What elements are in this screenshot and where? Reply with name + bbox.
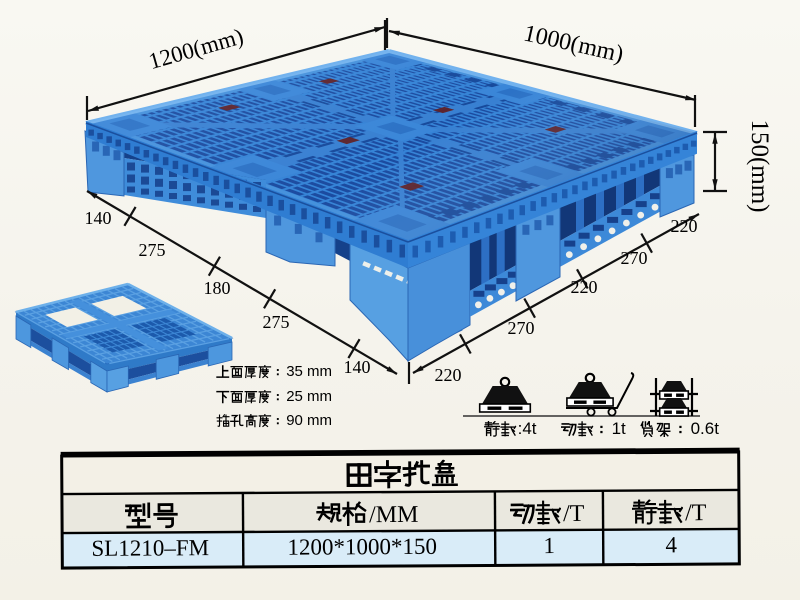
- svg-text:/T: /T: [685, 500, 707, 526]
- svg-text:1t: 1t: [612, 419, 626, 438]
- svg-text:275: 275: [263, 312, 290, 332]
- svg-text:270: 270: [621, 248, 648, 268]
- svg-text:4: 4: [665, 532, 677, 557]
- svg-text::4t: :4t: [518, 419, 537, 438]
- svg-text:25 mm: 25 mm: [286, 388, 332, 405]
- svg-text:275: 275: [139, 240, 166, 260]
- svg-text:140: 140: [85, 208, 112, 228]
- svg-text:180: 180: [204, 278, 231, 298]
- svg-text:90 mm: 90 mm: [286, 412, 332, 429]
- svg-text:220: 220: [571, 277, 598, 297]
- svg-text:/T: /T: [563, 501, 585, 527]
- svg-text:150(mm): 150(mm): [746, 119, 773, 212]
- svg-text:220: 220: [435, 365, 462, 385]
- svg-text:35 mm: 35 mm: [286, 363, 332, 380]
- svg-text:1200*1000*150: 1200*1000*150: [287, 534, 437, 560]
- svg-text:SL1210–FM: SL1210–FM: [91, 535, 209, 561]
- svg-text:140: 140: [344, 357, 371, 377]
- svg-text:0.6t: 0.6t: [691, 419, 720, 438]
- svg-text:270: 270: [508, 318, 535, 338]
- svg-text:1: 1: [543, 533, 555, 558]
- svg-text:220: 220: [671, 216, 698, 236]
- svg-text:/MM: /MM: [369, 502, 419, 528]
